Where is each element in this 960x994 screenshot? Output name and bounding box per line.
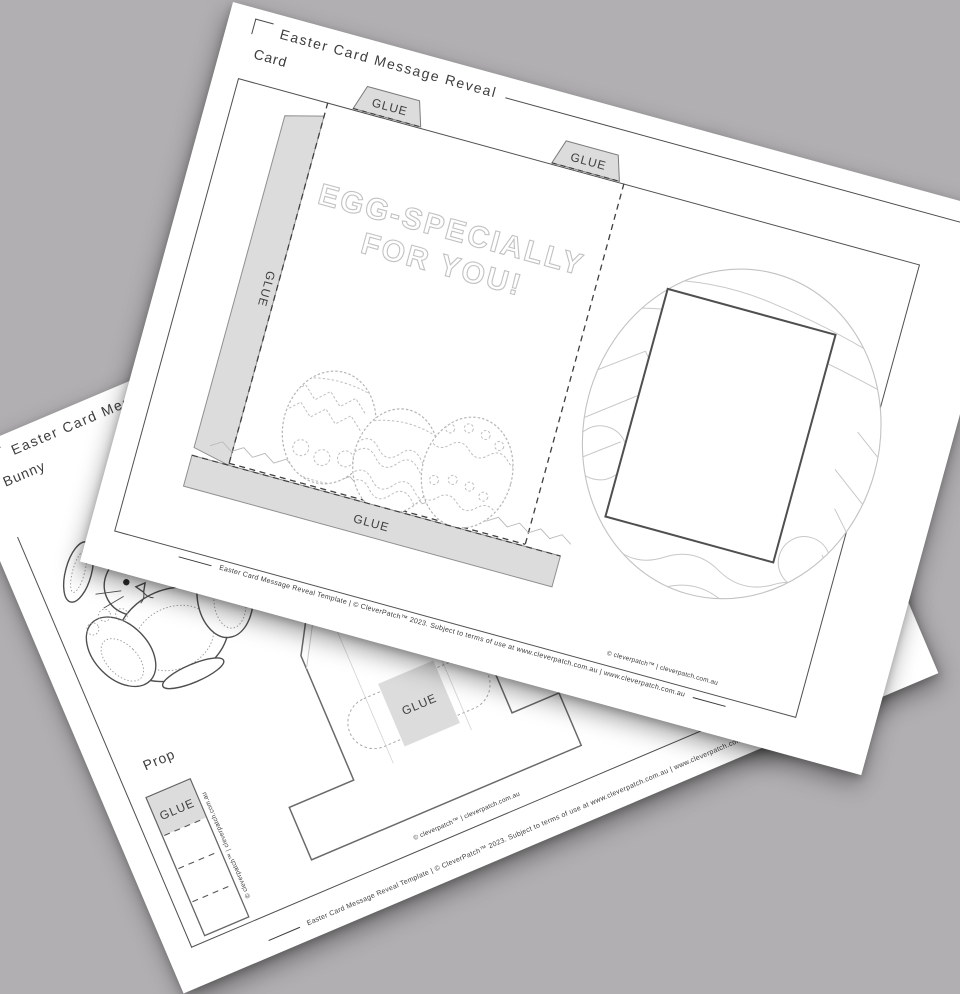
prop-strip: GLUE © cleverpatch™ | cleverpatch.com.au <box>146 775 259 936</box>
card-top-glue-tabs: GLUE GLUE <box>353 84 626 181</box>
hidden-message-text: EGG-SPECIALLY FOR YOU! <box>305 178 588 317</box>
reveal-egg-drawing <box>540 234 938 645</box>
desk-background: { "card_page": { "title": "Easter Card M… <box>0 0 960 960</box>
